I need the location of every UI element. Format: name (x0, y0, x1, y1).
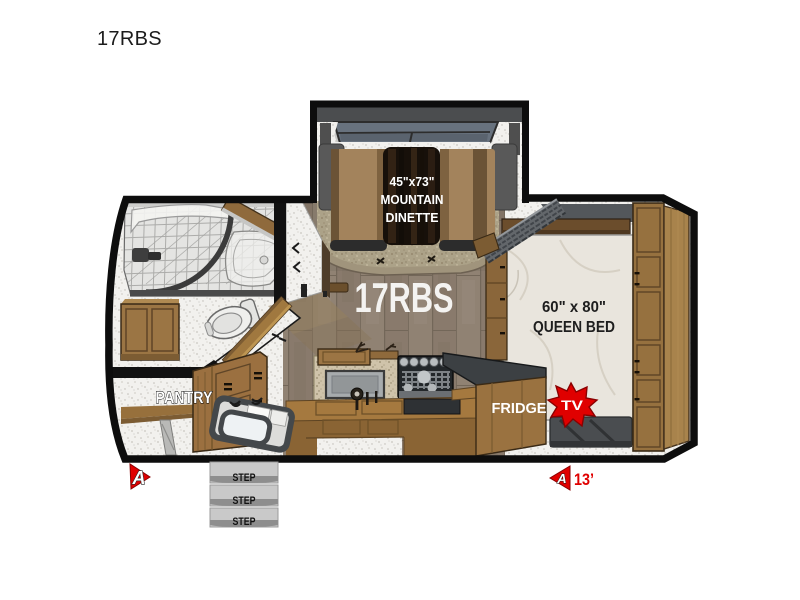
svg-text:STEP: STEP (233, 516, 256, 528)
svg-text:17RBS: 17RBS (97, 28, 162, 50)
svg-text:A: A (132, 468, 146, 488)
svg-text:PANTRY: PANTRY (156, 389, 213, 407)
svg-text:MOUNTAIN: MOUNTAIN (381, 193, 444, 207)
svg-text:DINETTE: DINETTE (386, 211, 439, 225)
svg-text:QUEEN BED: QUEEN BED (533, 319, 615, 336)
svg-text:FRIDGE: FRIDGE (492, 400, 547, 417)
svg-text:TV: TV (561, 397, 584, 413)
svg-text:60" x 80": 60" x 80" (542, 299, 606, 316)
svg-text:17RBS: 17RBS (355, 274, 454, 321)
svg-text:STEP: STEP (233, 495, 256, 507)
svg-text:13’: 13’ (574, 470, 594, 489)
svg-text:45"x73": 45"x73" (390, 175, 435, 189)
svg-text:STEP: STEP (233, 472, 256, 484)
svg-text:A: A (556, 471, 566, 486)
